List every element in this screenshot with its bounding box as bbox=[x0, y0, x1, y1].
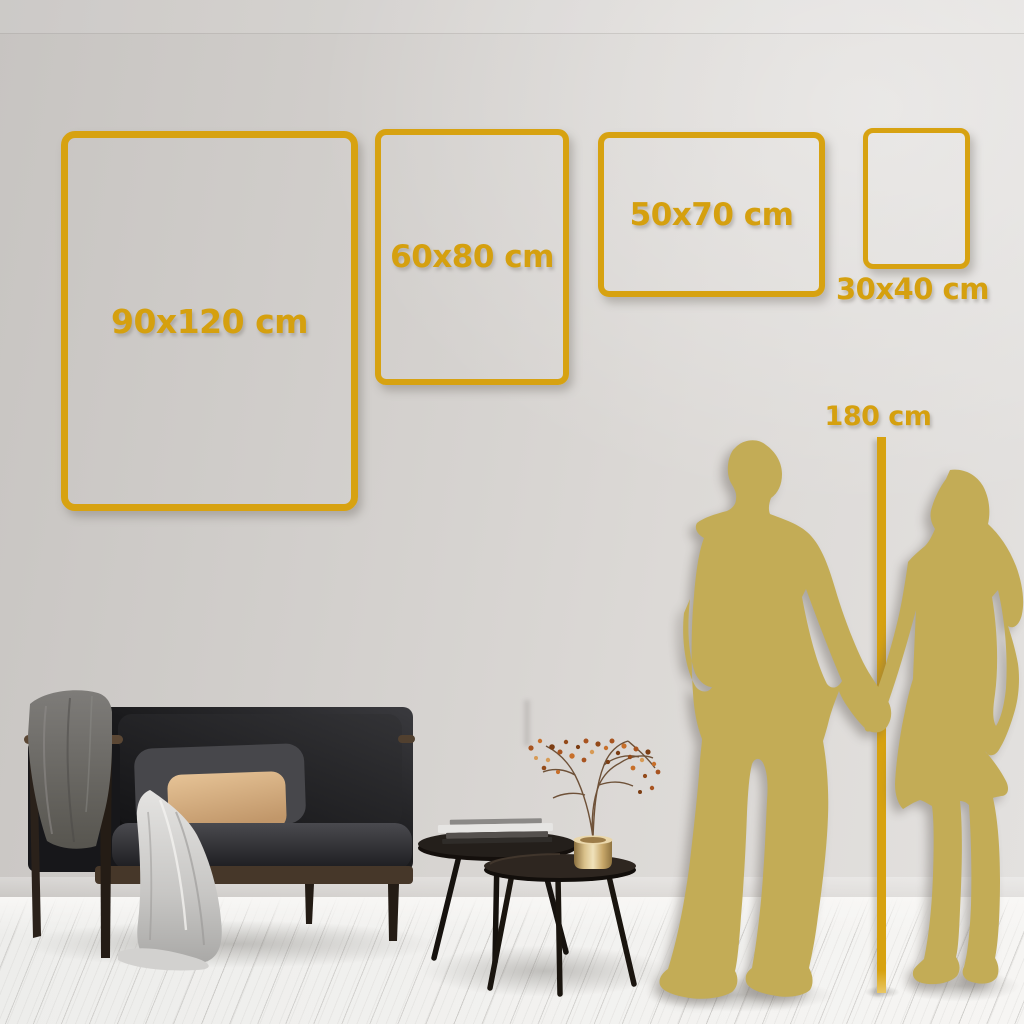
size-label-90x120: 90x120 cm bbox=[111, 302, 308, 341]
woman-silhouette bbox=[865, 470, 1024, 985]
sofa-leg-front-right bbox=[388, 884, 399, 941]
books-stack bbox=[438, 818, 553, 844]
coffee-table-large bbox=[484, 854, 636, 994]
sofa-armrest-rail-right bbox=[398, 735, 415, 743]
couple-silhouette bbox=[620, 430, 1024, 1024]
size-frame-90x120: 90x120 cm bbox=[61, 131, 358, 511]
wall-seam bbox=[0, 0, 1024, 34]
size-frame-50x70: 50x70 cm bbox=[598, 132, 825, 297]
size-label-50x70: 50x70 cm bbox=[630, 197, 794, 233]
sofa bbox=[0, 672, 460, 972]
size-label-60x80: 60x80 cm bbox=[390, 239, 554, 275]
height-reference-label: 180 cm bbox=[798, 401, 958, 432]
sofa-leg-middle bbox=[305, 884, 314, 924]
size-frame-60x80: 60x80 cm bbox=[375, 129, 569, 385]
size-label-30x40: 30x40 cm bbox=[836, 272, 988, 306]
man-silhouette bbox=[659, 440, 891, 999]
size-frame-30x40 bbox=[863, 128, 970, 269]
vase bbox=[574, 836, 613, 870]
size-guide-scene: 90x120 cm 60x80 cm 50x70 cm 30x40 cm 180… bbox=[0, 0, 1024, 1024]
